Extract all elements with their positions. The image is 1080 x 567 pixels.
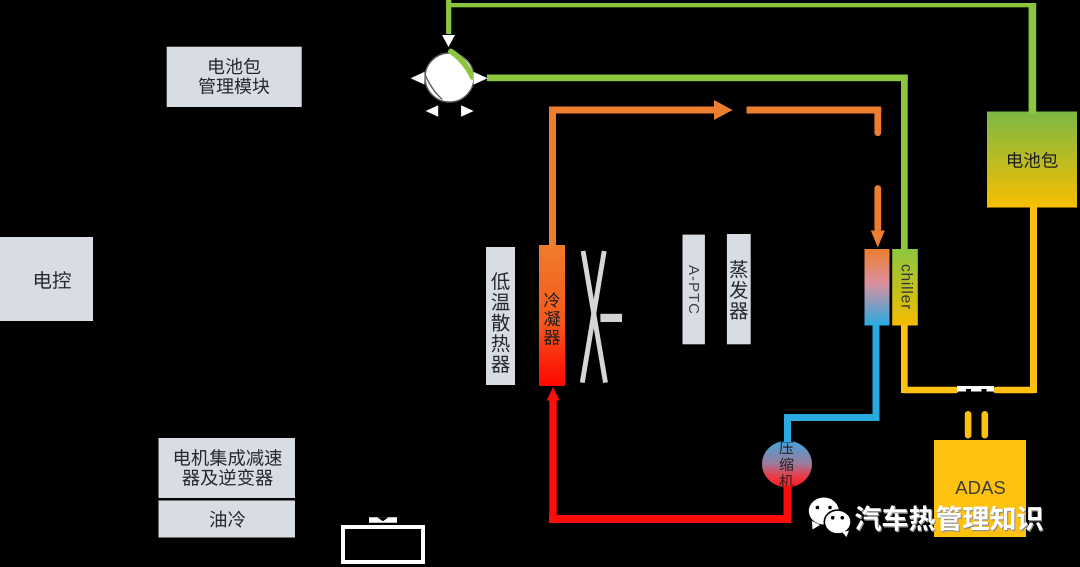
svg-text:A-PTC: A-PTC [685, 265, 702, 315]
svg-text:chiller: chiller [898, 264, 915, 310]
svg-text:ADAS: ADAS [955, 477, 1005, 498]
